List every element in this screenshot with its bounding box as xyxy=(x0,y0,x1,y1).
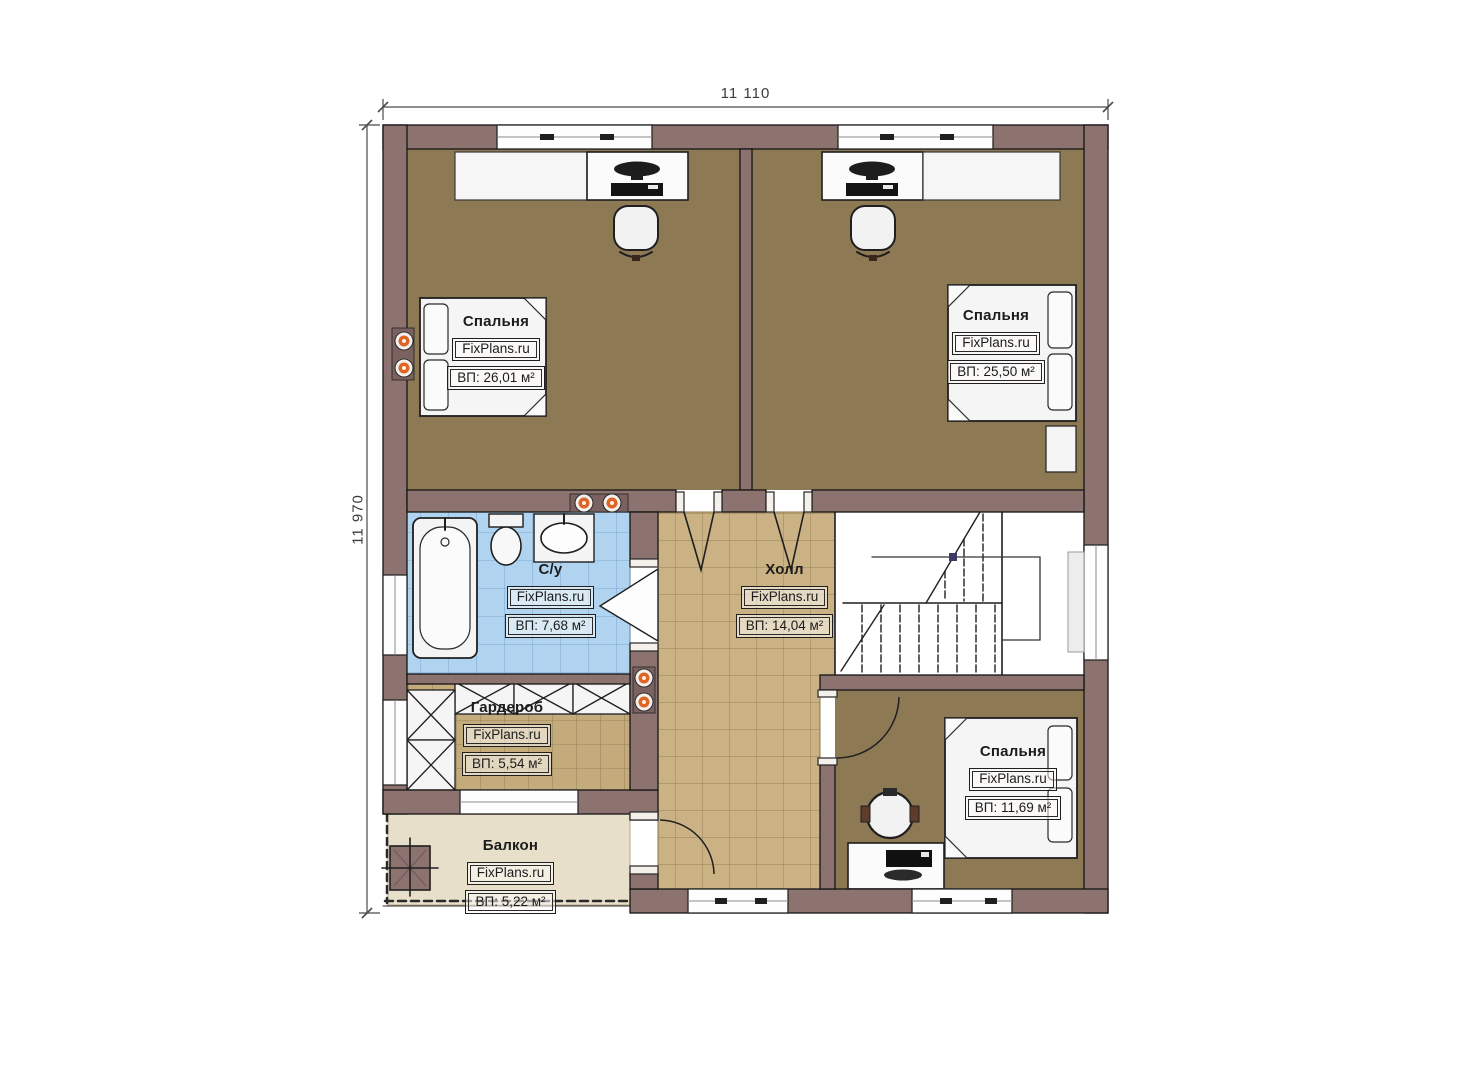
window-sill xyxy=(455,152,587,200)
dimension-width-label: 11 110 xyxy=(383,85,1108,102)
wall-bathroom xyxy=(630,512,658,565)
room-name: Гардероб xyxy=(471,700,544,717)
room-area: ВП: 5,22 м² xyxy=(465,890,555,914)
spotlight-icon xyxy=(635,693,653,711)
room-area: ВП: 25,50 м² xyxy=(947,360,1045,384)
room-area: ВП: 5,54 м² xyxy=(462,752,552,776)
room-name: С/у xyxy=(539,562,563,579)
floor-plan-canvas xyxy=(0,0,1473,1080)
door-jamb xyxy=(630,643,658,651)
stairs-floor xyxy=(835,512,1084,675)
door-jamb xyxy=(630,812,658,820)
spotlight-icon xyxy=(603,494,621,512)
wall-hall-bedroom xyxy=(820,762,835,889)
brand-label: FixPlans.ru xyxy=(463,724,551,748)
room-name: Спальня xyxy=(463,314,529,331)
spotlight-icon xyxy=(635,669,653,687)
wall-top xyxy=(383,125,1108,149)
room-area: ВП: 11,69 м² xyxy=(965,796,1062,820)
room-name: Холл xyxy=(765,562,803,579)
nightstand xyxy=(1046,426,1076,472)
room-label-bedroom-top-right: Спальня FixPlans.ru ВП: 25,50 м² xyxy=(930,308,1062,384)
balcony-column xyxy=(382,838,438,896)
brand-label: FixPlans.ru xyxy=(969,768,1057,792)
sink xyxy=(534,514,594,562)
room-area: ВП: 14,04 м² xyxy=(736,614,834,638)
spotlight-icon xyxy=(395,332,413,350)
bathtub xyxy=(413,518,477,658)
room-label-bedroom-bottom-right: Спальня FixPlans.ru ВП: 11,69 м² xyxy=(948,744,1078,820)
desk xyxy=(822,152,923,200)
wall-stairs-bedroom xyxy=(820,675,1084,690)
floor-plan: 11 110 11 970 Спальня FixPlans.ru ВП: 26… xyxy=(0,0,1473,1080)
spotlight-icon xyxy=(395,359,413,377)
wall-between-bedrooms xyxy=(740,149,752,490)
room-name: Спальня xyxy=(980,744,1046,761)
room-label-bathroom: С/у FixPlans.ru ВП: 7,68 м² xyxy=(488,562,613,638)
brand-label: FixPlans.ru xyxy=(952,332,1040,356)
wall-right xyxy=(1084,125,1108,913)
room-area: ВП: 7,68 м² xyxy=(505,614,595,638)
room-name: Балкон xyxy=(483,838,538,855)
spotlight-icon xyxy=(575,494,593,512)
desk xyxy=(848,843,944,889)
room-name: Спальня xyxy=(963,308,1029,325)
wall-thin xyxy=(407,674,630,684)
door-jamb xyxy=(804,492,812,512)
room-label-bedroom-top-left: Спальня FixPlans.ru ВП: 26,01 м² xyxy=(430,314,562,390)
door-jamb xyxy=(714,492,722,512)
brand-label: FixPlans.ru xyxy=(452,338,540,362)
brand-label: FixPlans.ru xyxy=(467,862,555,886)
wall-middle xyxy=(812,490,1084,512)
desk xyxy=(587,152,688,200)
room-label-wardrobe: Гардероб FixPlans.ru ВП: 5,54 м² xyxy=(448,700,566,776)
door-jamb xyxy=(630,866,658,874)
toilet xyxy=(489,514,523,565)
room-label-hall: Холл FixPlans.ru ВП: 14,04 м² xyxy=(722,562,847,638)
window-sill xyxy=(1068,552,1084,652)
brand-label: FixPlans.ru xyxy=(741,586,829,610)
door-jamb xyxy=(766,492,774,512)
door-jamb xyxy=(818,690,837,697)
wall-middle xyxy=(407,490,676,512)
wall-balcony-strip xyxy=(630,873,658,889)
room-area: ВП: 26,01 м² xyxy=(447,366,545,390)
window-sill xyxy=(923,152,1060,200)
room-label-balcony: Балкон FixPlans.ru ВП: 5,22 м² xyxy=(448,838,573,914)
door-jamb xyxy=(630,559,658,567)
wall-middle xyxy=(722,490,766,512)
door-jamb xyxy=(818,758,837,765)
dimension-height-label: 11 970 xyxy=(350,460,367,580)
brand-label: FixPlans.ru xyxy=(507,586,595,610)
door-jamb xyxy=(676,492,684,512)
